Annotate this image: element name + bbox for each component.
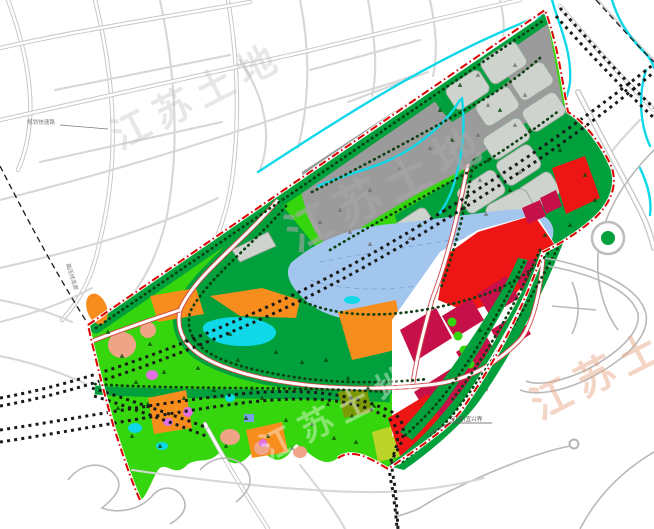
label-corridor: 高压线走廊: [64, 262, 80, 291]
planning-map: 江苏土地 江苏土地 江苏土地 江苏土地 规划快速路 高压线走廊 至(湖)宜兴界: [0, 0, 654, 529]
watermark-topleft: 江苏土地: [104, 33, 291, 158]
planning-map-canvas: 江苏土地 江苏土地 江苏土地 江苏土地 规划快速路 高压线走廊 至(湖)宜兴界: [0, 0, 654, 529]
cul-de-sac: [570, 440, 579, 449]
watermark-bottomright: 江苏土地: [524, 299, 654, 429]
label-nw-road: 规划快速路: [27, 118, 55, 126]
label-boundary-se: 至(湖)宜兴界: [450, 415, 483, 423]
